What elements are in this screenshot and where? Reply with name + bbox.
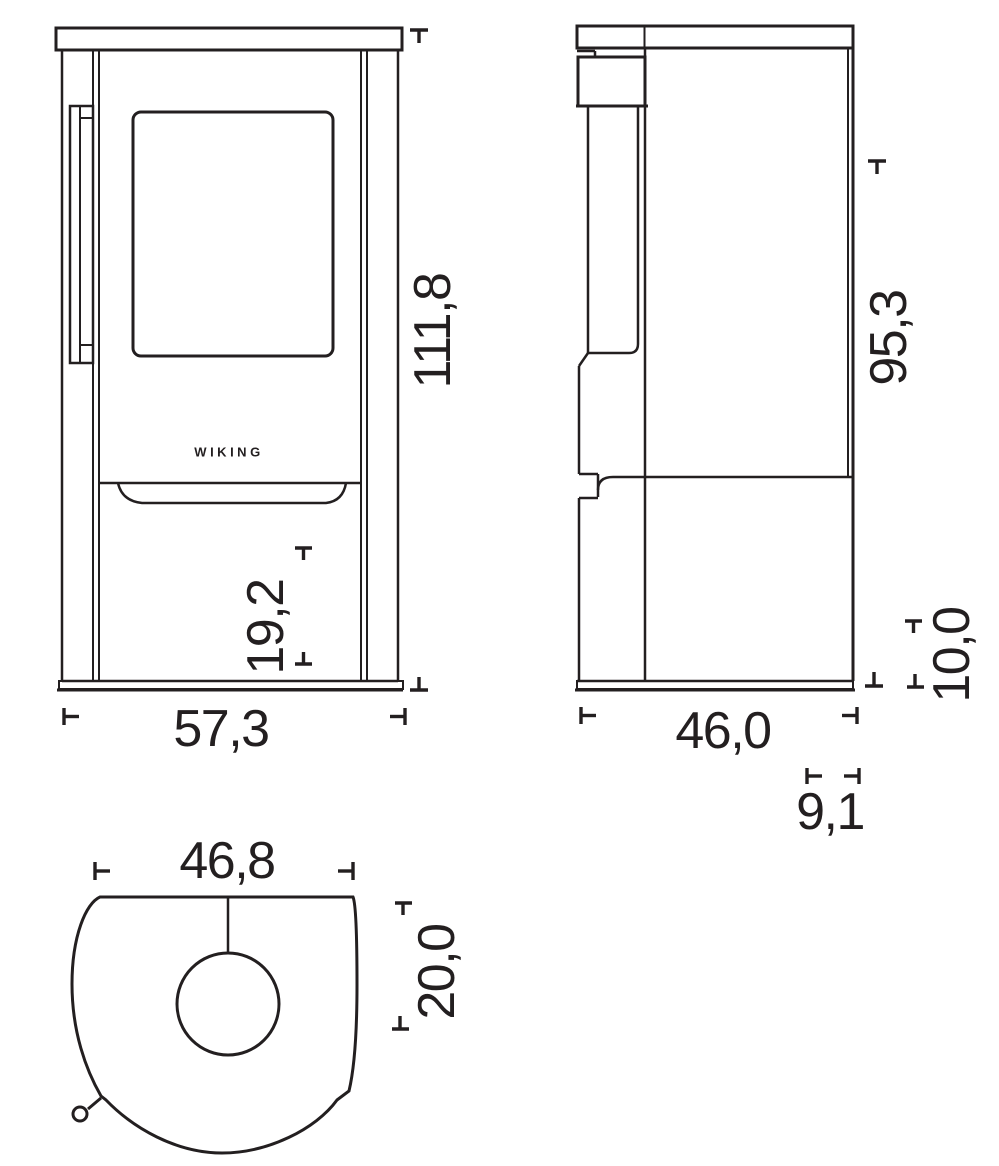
dim-side-flue-offset: 9,1	[796, 768, 864, 841]
dim-label-side-depth: 46,0	[675, 702, 770, 760]
side-grip-notch-arc	[598, 477, 613, 490]
dim-top-flue-center: 20,0	[392, 903, 466, 1029]
dim-front-width: 57,3	[64, 700, 405, 758]
drawing-canvas: WIKING 111,8 19,2 57,3	[0, 0, 999, 1166]
dim-side-depth: 46,0	[581, 702, 857, 760]
dim-top-width: 46,8	[95, 832, 353, 890]
dim-label-side-offset: 9,1	[796, 783, 864, 841]
door-bottom-lip	[118, 483, 346, 503]
stove-dimension-drawing: WIKING 111,8 19,2 57,3	[0, 0, 999, 1166]
dim-label-front-lower: 19,2	[237, 579, 295, 674]
dim-label-top-width: 46,8	[179, 832, 274, 890]
dim-side-body-height: 95,3	[860, 161, 918, 686]
top-view: 46,8 20,0	[72, 832, 466, 1153]
top-body-outline	[72, 897, 357, 1153]
door-handle	[70, 106, 93, 363]
dim-label-side-height: 95,3	[860, 290, 918, 385]
top-handle-stem	[88, 1098, 101, 1109]
dim-label-front-width: 57,3	[173, 700, 268, 758]
top-flue-outlet	[177, 953, 279, 1055]
dim-front-total-height: 111,8	[404, 30, 462, 690]
brand-logo-text: WIKING	[194, 445, 263, 460]
side-door-glass-frame	[588, 106, 638, 353]
dim-label-front-height: 111,8	[404, 274, 462, 389]
side-view: 95,3 10,0 46,0 9,1	[575, 26, 981, 841]
dim-front-lower-section: 19,2	[237, 548, 312, 675]
dim-label-side-plinth: 10,0	[923, 607, 981, 702]
side-door-chamfer	[579, 353, 588, 366]
dim-side-plinth-height: 10,0	[905, 607, 981, 702]
front-view: WIKING 111,8 19,2 57,3	[56, 28, 462, 758]
door-glass-window	[133, 112, 333, 356]
top-handle-knob	[73, 1107, 87, 1121]
door-handle-outline	[70, 106, 93, 363]
side-top-plate	[577, 26, 853, 48]
front-top-plate	[56, 28, 402, 50]
side-door-top-box	[578, 57, 645, 106]
dim-label-top-flue: 20,0	[408, 924, 466, 1019]
